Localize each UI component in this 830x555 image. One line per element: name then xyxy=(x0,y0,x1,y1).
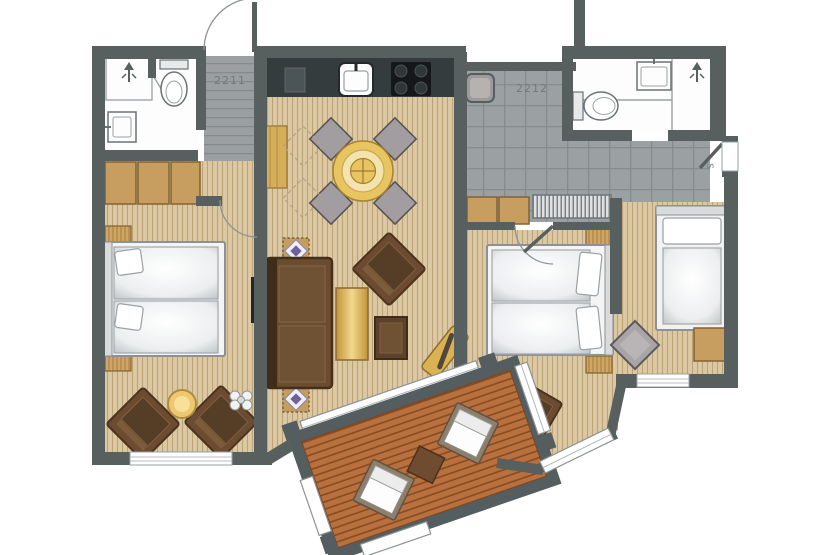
wall xyxy=(724,174,738,382)
toilet-icon xyxy=(573,92,618,120)
unit-number-right: 2212 xyxy=(516,82,548,95)
wall xyxy=(562,58,573,138)
sofa-cushion xyxy=(279,266,325,322)
toilet-icon xyxy=(160,60,188,106)
unit-number-left: 2211 xyxy=(214,74,246,87)
decor-square xyxy=(283,386,309,412)
wall xyxy=(254,46,267,460)
wall xyxy=(196,52,206,130)
pillow xyxy=(663,218,721,244)
wall xyxy=(254,46,466,58)
wall xyxy=(562,46,726,59)
entry-door-leaf xyxy=(252,2,257,52)
kitchen-appliance xyxy=(285,68,305,92)
window xyxy=(130,452,232,465)
nightstand xyxy=(105,226,131,243)
nightstand xyxy=(586,228,612,245)
wall xyxy=(574,0,585,50)
coffee-table xyxy=(336,288,368,360)
window xyxy=(637,374,689,387)
wall xyxy=(92,46,105,465)
entry-door-opening xyxy=(722,142,738,171)
wall xyxy=(454,52,467,392)
sink-icon xyxy=(637,58,671,90)
wall xyxy=(553,222,611,230)
dining-table xyxy=(333,141,393,201)
wall xyxy=(610,198,622,314)
luggage-rack xyxy=(533,195,611,218)
stove-icon xyxy=(391,62,431,96)
floor-plan: 2211 2212 S xyxy=(0,0,830,555)
partition-stub xyxy=(148,58,156,78)
double-bed xyxy=(487,245,613,355)
wall xyxy=(92,46,206,59)
sofa xyxy=(266,258,332,388)
side-marker-label: S xyxy=(704,163,714,169)
floor-plan-canvas: 2211 2212 S xyxy=(0,0,830,555)
wall xyxy=(710,46,726,140)
ottoman xyxy=(375,317,407,359)
wall xyxy=(196,196,222,206)
pillow xyxy=(576,252,602,296)
nightstand xyxy=(586,356,612,373)
wall xyxy=(100,150,198,161)
wall xyxy=(467,222,515,230)
single-bed xyxy=(656,206,728,330)
wardrobe xyxy=(105,162,200,204)
wall xyxy=(460,62,576,71)
pillow xyxy=(114,248,143,275)
pillow xyxy=(114,303,143,330)
mattress xyxy=(492,250,590,301)
mattress xyxy=(492,303,590,354)
wall xyxy=(562,130,632,141)
door-swing-icon xyxy=(204,0,256,50)
sofa-back xyxy=(266,258,277,388)
sink-icon xyxy=(105,112,136,142)
pillow xyxy=(576,306,602,350)
stool xyxy=(466,74,494,102)
kitchen-sink-icon xyxy=(339,63,373,96)
headboard xyxy=(656,206,728,215)
double-bed xyxy=(103,242,225,356)
round-side-table xyxy=(168,390,196,418)
wall xyxy=(668,130,726,141)
mattress xyxy=(663,248,721,324)
sofa-cushion xyxy=(279,326,325,382)
